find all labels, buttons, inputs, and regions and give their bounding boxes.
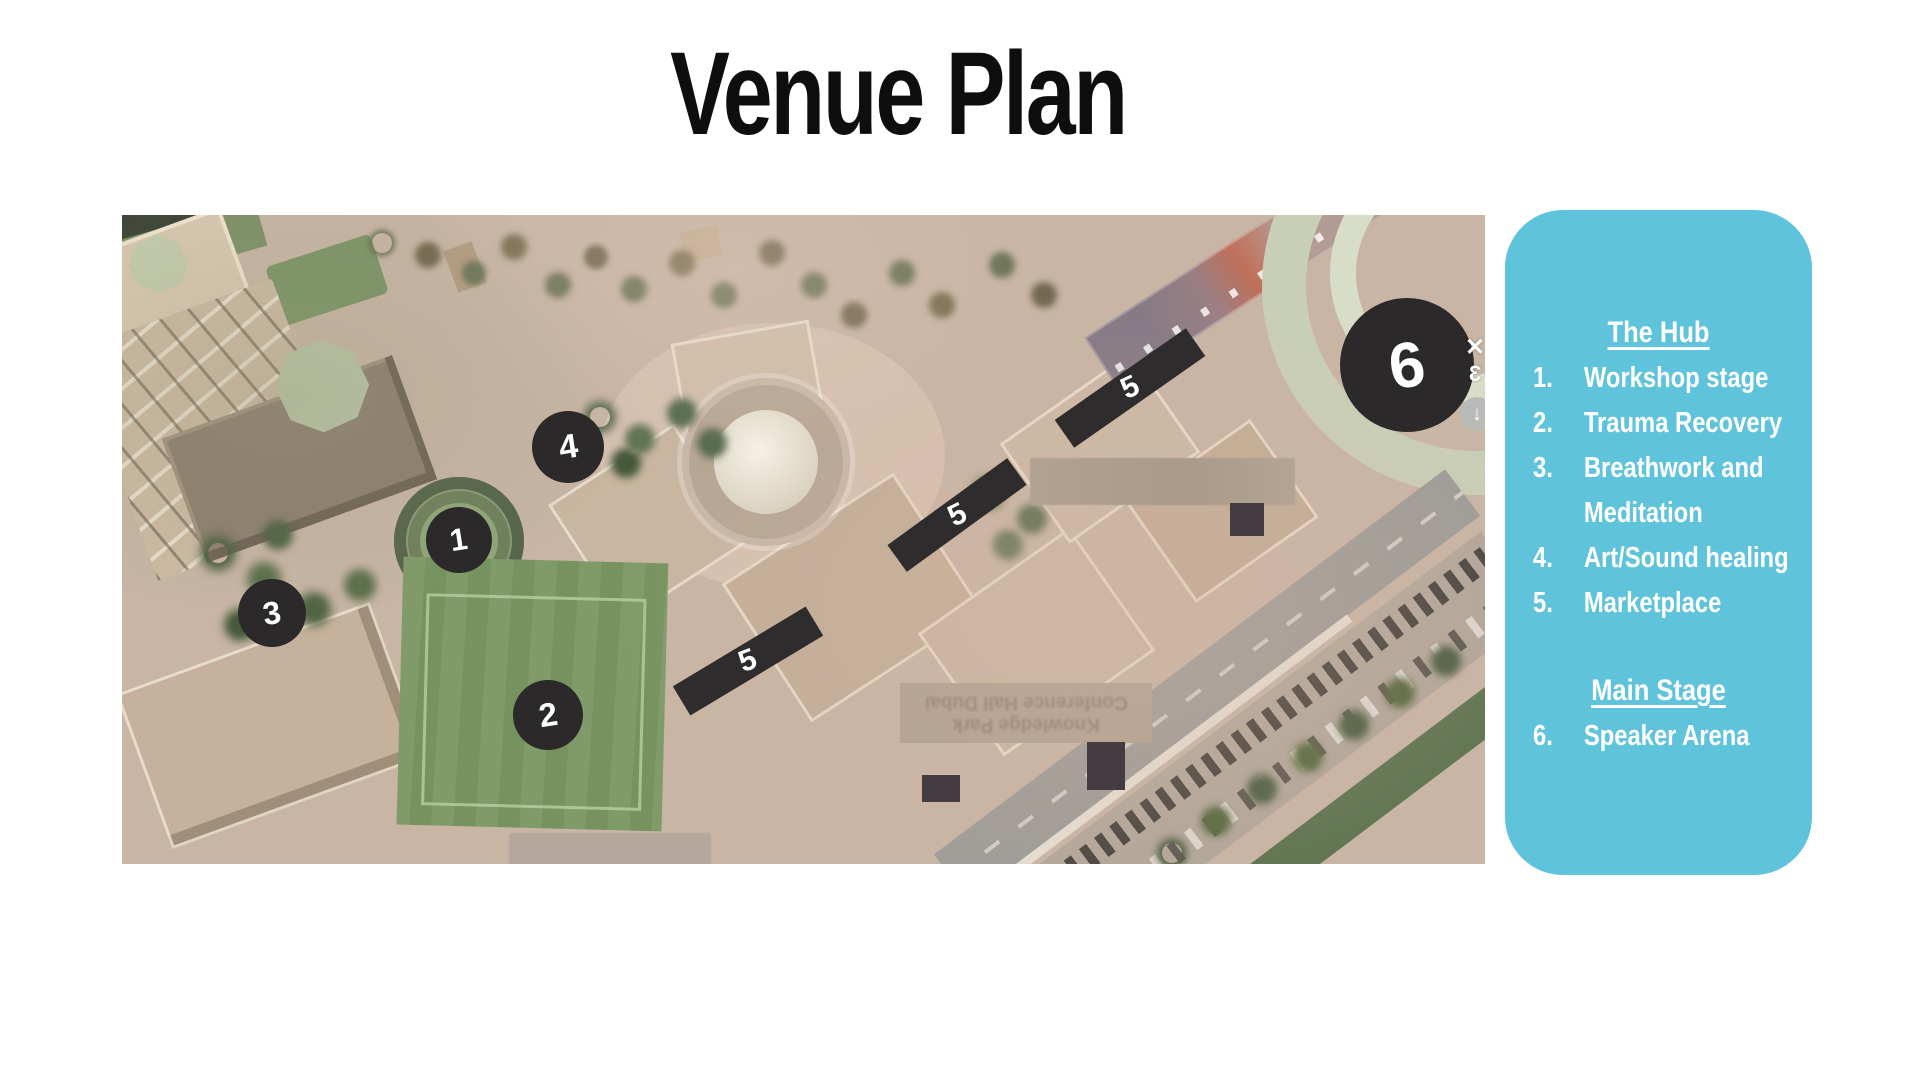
legend-item: 2.Trauma Recovery	[1533, 401, 1797, 446]
map-trees	[208, 543, 228, 563]
page-title: Venue Plan	[670, 26, 1126, 162]
map-dome	[714, 410, 818, 514]
legend-item-number: 2.	[1533, 401, 1584, 446]
map-dark-structure	[922, 775, 960, 802]
zone-bar-number: 5	[734, 642, 762, 680]
marker-number: 3	[260, 593, 283, 632]
map-marker-6: 6	[1340, 298, 1474, 432]
venue-satellite-map: Conference Hall Dubai Knowledge Park ✕ 3…	[122, 215, 1485, 864]
map-building	[679, 225, 722, 262]
legend-item-label: Workshop stage	[1584, 356, 1797, 401]
zone-bar-number: 5	[942, 496, 972, 534]
legend-item: 4.Art/Sound healing	[1533, 536, 1797, 581]
marker-number: 1	[448, 521, 471, 559]
map-marker-3: 3	[238, 579, 306, 647]
legend-item-label: Art/Sound healing	[1584, 536, 1797, 581]
obscured-label-text: Knowledge Park	[952, 713, 1100, 735]
legend-item-number: 4.	[1533, 536, 1584, 581]
legend-item-number: 3.	[1533, 446, 1584, 536]
obscured-label-patch	[509, 833, 711, 864]
legend-item-label: Trauma Recovery	[1584, 401, 1797, 446]
obscured-label-patch: Conference Hall Dubai Knowledge Park	[900, 683, 1152, 743]
map-dark-structure	[1087, 742, 1125, 790]
legend-item-number: 1.	[1533, 356, 1584, 401]
legend-item: 3.Breathwork and Meditation	[1533, 446, 1797, 536]
x-glyph: ✕	[1465, 333, 1485, 362]
map-building	[443, 241, 486, 293]
legend-body: The Hub1.Workshop stage2.Trauma Recovery…	[1505, 310, 1812, 759]
map-trees	[372, 233, 392, 253]
legend-section: The Hub1.Workshop stage2.Trauma Recovery…	[1533, 310, 1784, 626]
legend-heading-main-stage: Main Stage	[1552, 668, 1765, 714]
marker-number: 4	[556, 426, 581, 467]
legend-heading-the-hub: The Hub	[1552, 310, 1765, 356]
venue-plan-slide: Venue Plan	[0, 0, 1920, 1080]
arrow-char: ↓	[1472, 403, 1482, 426]
legend-section: Main Stage6.Speaker Arena	[1533, 668, 1784, 759]
legend-item-label: Breathwork and Meditation	[1584, 446, 1797, 536]
legend-item-label: Speaker Arena	[1584, 714, 1797, 759]
map-marker-2: 2	[513, 680, 583, 750]
map-trees	[1162, 843, 1182, 863]
obscured-label-patch	[1030, 458, 1295, 505]
map-marker-4: 4	[532, 411, 604, 483]
marker-number: 6	[1384, 326, 1431, 405]
legend-item: 1.Workshop stage	[1533, 356, 1797, 401]
map-dark-structure	[1230, 503, 1264, 536]
marker-number: 2	[536, 695, 560, 735]
legend-item: 6.Speaker Arena	[1533, 714, 1797, 759]
legend-item: 5.Marketplace	[1533, 581, 1797, 626]
zone-bar-number: 5	[1115, 369, 1144, 407]
map-marker-1: 1	[426, 507, 492, 573]
legend-item-number: 5.	[1533, 581, 1584, 626]
legend-item-label: Marketplace	[1584, 581, 1797, 626]
legend-item-number: 6.	[1533, 714, 1584, 759]
legend-panel: The Hub1.Workshop stage2.Trauma Recovery…	[1505, 210, 1812, 875]
mirrored-3-glyph: 3	[1469, 361, 1481, 387]
obscured-label-text: Conference Hall Dubai	[925, 691, 1128, 713]
